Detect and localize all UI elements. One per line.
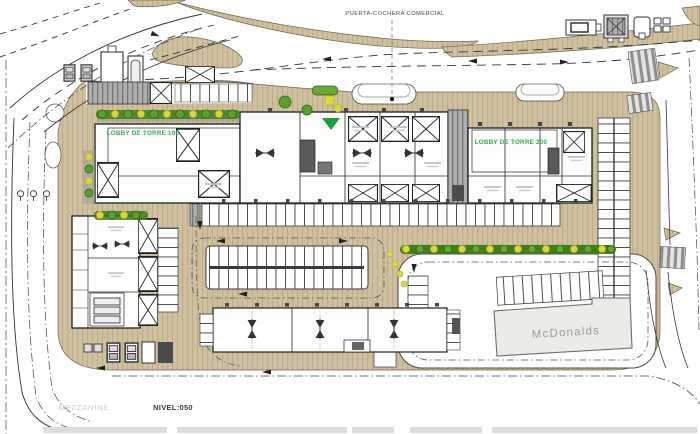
dropoff-notch-2 [516,84,564,101]
service-stall-ticks [175,84,252,102]
parking-col-left [158,228,178,312]
loading-dock [88,82,150,104]
puerta-leader-dot [390,97,394,101]
strip-building [200,303,460,352]
strip-cap-right-core [452,318,460,334]
monument-sign-tab [596,24,601,31]
street-tree-1 [17,191,23,201]
utility-box-2 [663,18,670,24]
dropoff-notch-1 [352,84,416,104]
kiosk-notch [639,33,645,39]
dock-bin-1 [84,344,92,352]
dock-truck-1 [107,343,120,362]
mezzanine-tab-label[interactable]: MEZZANINE [59,403,110,412]
corner-dash-1 [0,3,100,34]
anchor-building [72,216,158,328]
dock-dark-pad [158,342,173,363]
tank-1-cap [108,46,116,52]
street-tree-2 [30,191,36,201]
curb-pocket-2 [45,142,61,168]
right-property-dashdot [689,58,699,330]
lobby-torre-200-label: LOBBY DE TORRE 200 [475,139,548,146]
pad-foot-1 [608,38,613,42]
lobby-torre-100-label: LOBBY DE TORRE 100 [107,130,180,137]
bottom-edge-strips [43,427,697,433]
street-tree-3 [43,191,49,201]
dock-bin-2 [94,344,102,352]
strip-outline [213,308,447,352]
parking-top-row [202,204,560,226]
right-road-curb-1 [666,100,670,245]
site-plan-drawing: McDonalds [0,0,700,434]
site-plan-sheet: McDonalds [0,0,700,434]
corner-wedge-top-left [128,0,186,7]
utility-box-3 [654,26,661,32]
truck-1 [64,65,75,81]
anchor-restrooms [94,298,120,323]
puerta-cochera-label: PUERTA-COCHERA COMERCIAL [345,11,445,17]
pad-foot-2 [619,38,624,42]
ramp-box-top [186,66,215,82]
crosswalk-right [659,246,685,268]
crosswalk-top-right-2 [627,92,653,113]
utility-box-1 [654,18,661,24]
nivel-label: NIVEL:050 [153,403,193,412]
monument-sign-inner [571,23,588,32]
truck-2 [81,65,92,81]
mcd-parking-row [496,271,604,305]
dock-box [142,342,155,363]
strip-cap-left [200,314,213,346]
bottom-road-dashdot [112,376,700,404]
road-island [152,37,242,68]
median-triangle-right [658,62,678,78]
dock-truck-2 [125,343,138,362]
sheet-labels: MEZZANINE NIVEL:050 [59,403,193,412]
strip-vestibule-core [352,342,364,350]
anchor-xbraces [138,219,157,325]
corner-blob-top-right [682,6,700,26]
dock-ramp [150,83,171,104]
crosswalk-top-right [628,48,659,83]
utility-box-4 [663,26,670,32]
median-triangle-right2 [664,228,680,240]
